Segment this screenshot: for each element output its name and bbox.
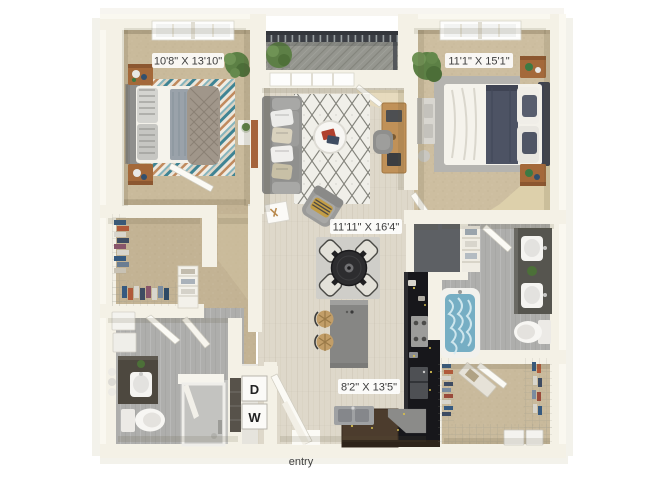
svg-text:entry: entry [289,456,314,468]
svg-text:8'2" X 13'5": 8'2" X 13'5" [341,382,397,394]
svg-text:10'8" X 13'10": 10'8" X 13'10" [154,56,222,68]
svg-text:D: D [250,382,259,397]
svg-text:W: W [248,410,261,425]
svg-text:11'1" X 15'1": 11'1" X 15'1" [448,56,509,68]
svg-text:11'11" X 16'4": 11'11" X 16'4" [333,222,400,234]
